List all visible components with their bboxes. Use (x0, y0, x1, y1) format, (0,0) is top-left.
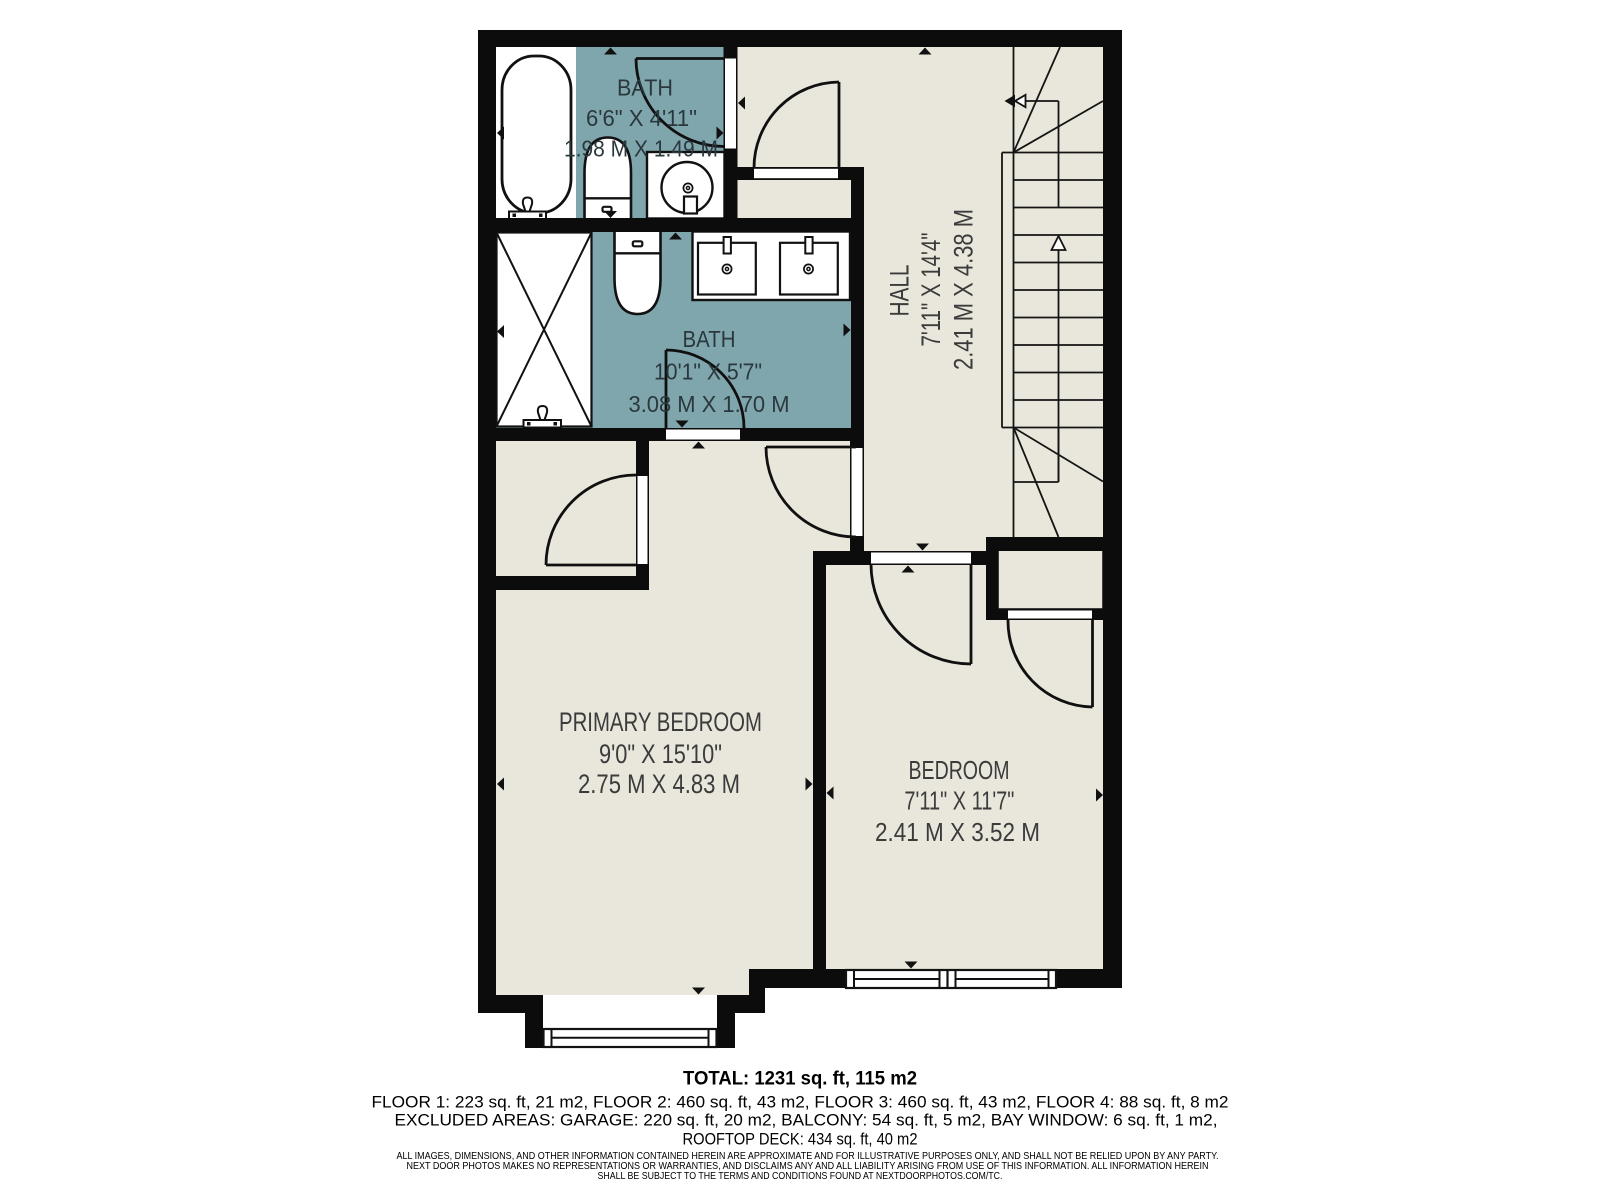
svg-text:7'11" X 11'7": 7'11" X 11'7" (904, 787, 1014, 815)
svg-text:2.75 M X 4.83 M: 2.75 M X 4.83 M (578, 769, 740, 799)
svg-text:BEDROOM: BEDROOM (909, 757, 1010, 785)
svg-text:2.41 M X 4.38 M: 2.41 M X 4.38 M (949, 209, 979, 370)
svg-text:BATH: BATH (617, 75, 673, 101)
svg-text:PRIMARY BEDROOM: PRIMARY BEDROOM (559, 707, 762, 737)
svg-text:SHALL BE SUBJECT TO THE TERMS: SHALL BE SUBJECT TO THE TERMS AND CONDIT… (598, 1170, 1003, 1182)
svg-text:3.08 M X 1.70 M: 3.08 M X 1.70 M (629, 391, 790, 417)
svg-text:6'6" X 4'11": 6'6" X 4'11" (586, 105, 697, 131)
svg-text:1.98 M X 1.49 M: 1.98 M X 1.49 M (564, 136, 718, 162)
svg-text:HALL: HALL (885, 265, 915, 317)
svg-text:TOTAL: 1231 sq. ft, 115 m2: TOTAL: 1231 sq. ft, 115 m2 (683, 1069, 917, 1090)
svg-text:10'1" X 5'7": 10'1" X 5'7" (654, 359, 762, 385)
svg-text:ROOFTOP DECK: 434 sq. ft, 40 m: ROOFTOP DECK: 434 sq. ft, 40 m2 (683, 1130, 918, 1149)
svg-text:2.41 M X 3.52 M: 2.41 M X 3.52 M (875, 819, 1040, 847)
svg-text:BATH: BATH (683, 326, 736, 352)
svg-text:7'11" X 14'4": 7'11" X 14'4" (916, 233, 946, 347)
svg-text:EXCLUDED AREAS: GARAGE: 220 sq: EXCLUDED AREAS: GARAGE: 220 sq. ft, 20 m… (395, 1111, 1218, 1130)
svg-text:FLOOR 1: 223 sq. ft, 21 m2, FL: FLOOR 1: 223 sq. ft, 21 m2, FLOOR 2: 460… (372, 1092, 1229, 1111)
svg-text:9'0" X 15'10": 9'0" X 15'10" (599, 739, 722, 769)
